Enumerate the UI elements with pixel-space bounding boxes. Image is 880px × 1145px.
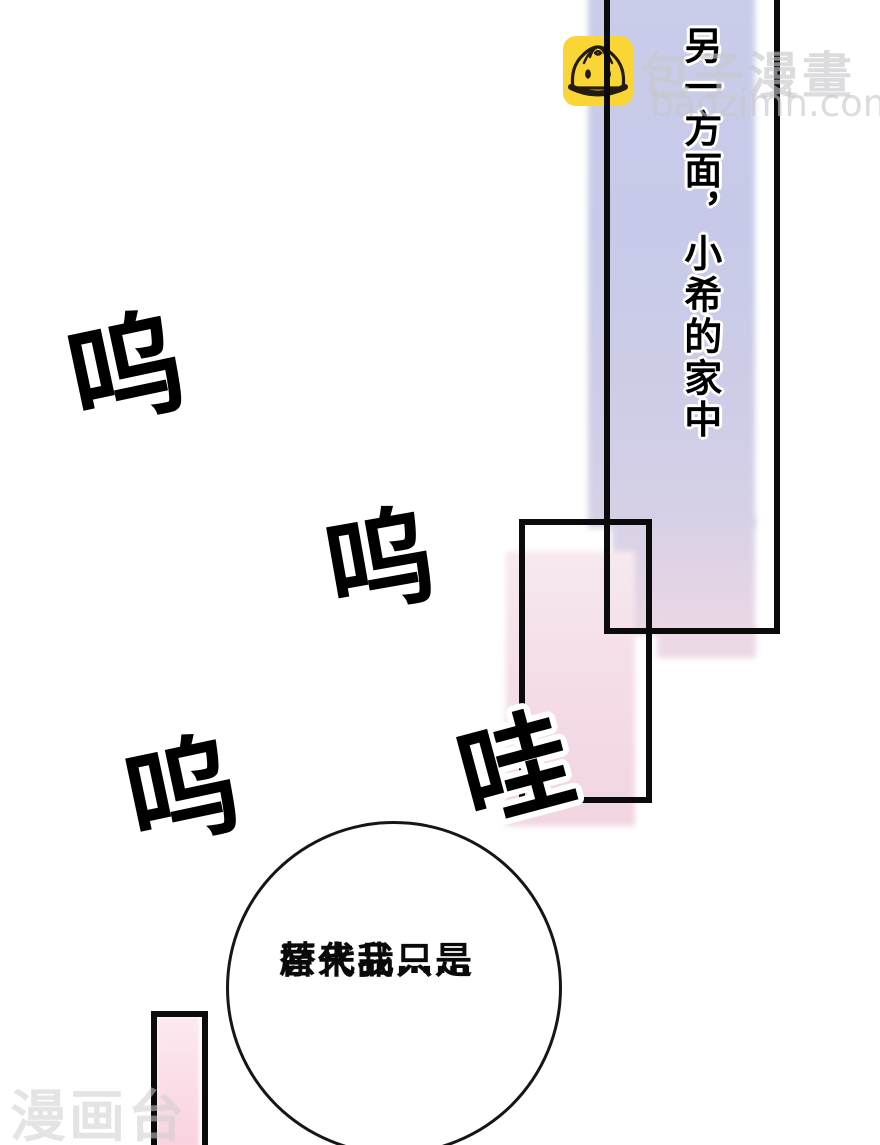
sfx-wa: 哇 <box>420 676 610 866</box>
sfx-wu-3-glyph: 呜 <box>114 719 251 869</box>
speech-line-2: 替代品…… <box>279 936 474 985</box>
sfx-wu-2-glyph: 呜 <box>316 493 444 635</box>
sfx-wu-2: 呜 <box>284 470 474 660</box>
sfx-wu-1: 呜 <box>30 278 220 468</box>
speech-bubble: 原来我只是 替代品…… <box>226 821 562 1145</box>
sfx-wu-1-glyph: 呜 <box>56 294 196 449</box>
watermark-site-url: baozimh.com <box>650 82 880 125</box>
sfx-wa-glyph: 哇 <box>445 693 587 848</box>
manga-page: 原来我只是 替代品…… 另一方面，小希的家中 呜 呜 呜 哇 包子漫畫 baoz… <box>0 0 880 1145</box>
sfx-wu-3: 呜 <box>86 700 276 890</box>
watermark-bottom-left: 漫画台 <box>10 1072 187 1145</box>
